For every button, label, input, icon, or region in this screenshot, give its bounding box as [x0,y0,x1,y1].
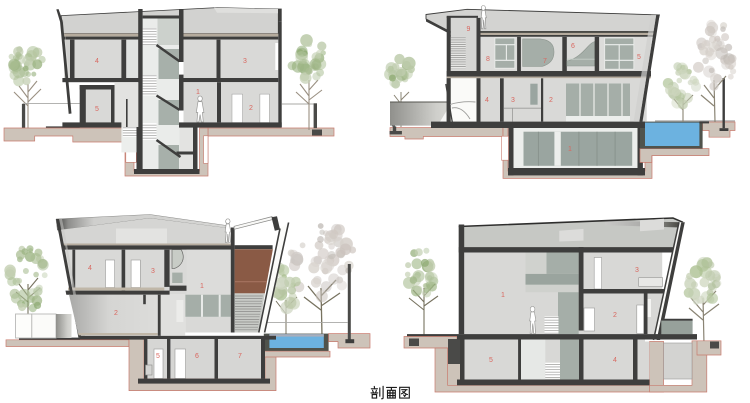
svg-text:7: 7 [543,58,547,65]
svg-text:5: 5 [637,54,641,61]
svg-text:5: 5 [156,353,160,360]
svg-text:2: 2 [249,105,253,112]
svg-text:2: 2 [613,312,617,319]
svg-text:5: 5 [95,106,99,113]
svg-text:2: 2 [114,310,118,317]
svg-text:3: 3 [635,267,639,274]
svg-text:4: 4 [613,357,617,364]
svg-text:8: 8 [486,56,490,63]
svg-text:1: 1 [200,283,204,290]
svg-text:9: 9 [467,26,471,33]
svg-text:3: 3 [243,58,247,65]
svg-text:3: 3 [151,268,155,275]
svg-text:1: 1 [196,89,200,96]
svg-text:6: 6 [195,353,199,360]
svg-text:4: 4 [95,58,99,65]
svg-text:1: 1 [568,146,572,153]
svg-text:6: 6 [571,43,575,50]
svg-text:4: 4 [88,265,92,272]
svg-text:4: 4 [485,97,489,104]
svg-text:5: 5 [489,357,493,364]
svg-text:7: 7 [238,353,242,360]
svg-text:3: 3 [511,97,515,104]
svg-text:1: 1 [501,292,505,299]
svg-text:2: 2 [549,97,553,104]
